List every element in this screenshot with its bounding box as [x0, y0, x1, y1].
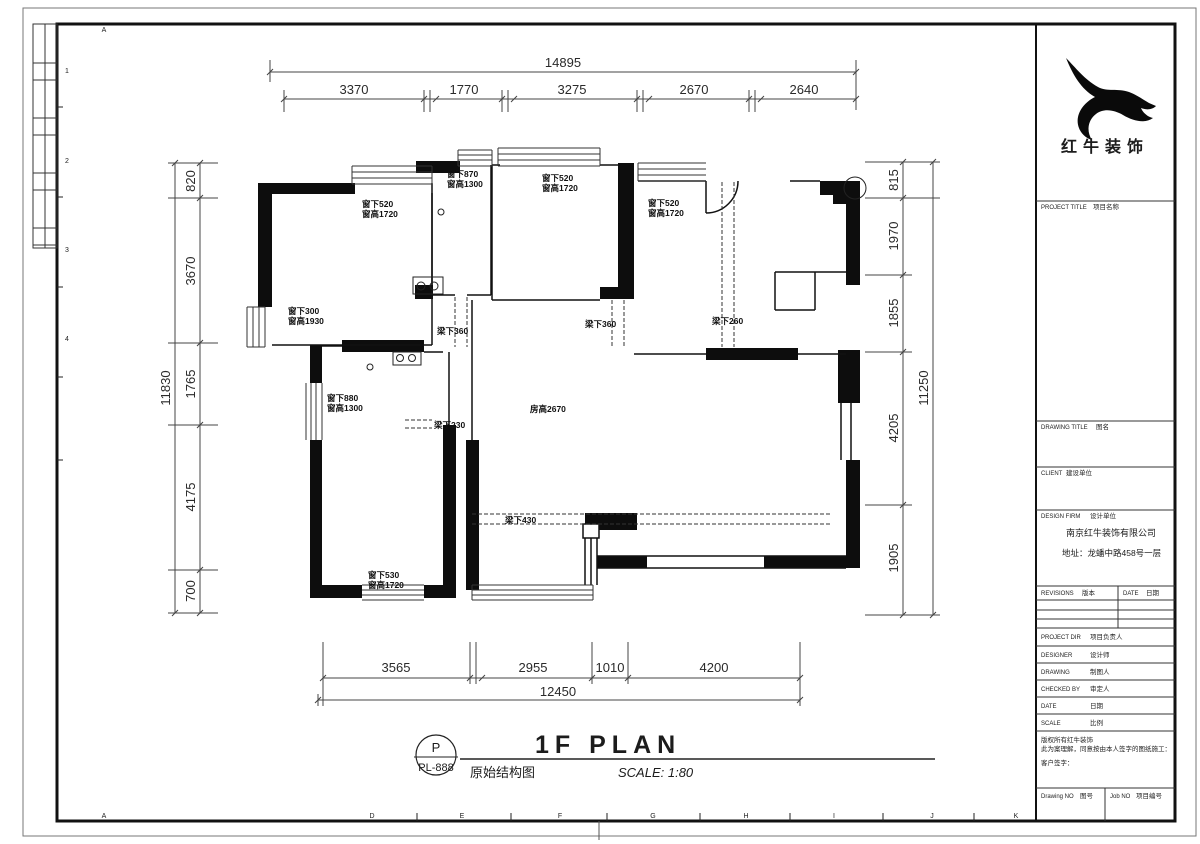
svg-text:日期: 日期: [1146, 589, 1160, 597]
window-label: 窗高1720: [368, 580, 404, 590]
svg-text:DESIGNER: DESIGNER: [1041, 653, 1073, 659]
window-label: 窗下880: [327, 393, 358, 403]
svg-text:3565: 3565: [382, 660, 411, 675]
plan-title: 1F PLAN: [535, 731, 681, 759]
svg-text:A: A: [102, 813, 107, 820]
svg-text:G: G: [650, 813, 655, 820]
window-label: 窗下520: [648, 198, 679, 208]
svg-text:DRAWING TITLE: DRAWING TITLE: [1041, 425, 1088, 431]
svg-text:1770: 1770: [450, 82, 479, 97]
svg-text:2640: 2640: [790, 82, 819, 97]
svg-text:设计师: 设计师: [1090, 650, 1110, 659]
svg-text:I: I: [833, 813, 835, 820]
plan-subtitle: 原始结构图: [470, 765, 535, 780]
grid-top-a: A: [102, 27, 107, 34]
window-label: 窗下530: [368, 570, 399, 580]
drawing-title-bar: P PL-888 1F PLAN 原始结构图 SCALE: 1:80: [414, 731, 935, 780]
svg-text:制图人: 制图人: [1090, 667, 1110, 676]
svg-text:图名: 图名: [1096, 422, 1109, 431]
window-label: 窗下520: [362, 199, 393, 209]
dim-total-top: 14895: [545, 55, 581, 70]
window-label: 窗高1300: [447, 179, 483, 189]
svg-text:2955: 2955: [519, 660, 548, 675]
dim-total-right: 11250: [916, 370, 931, 405]
svg-text:DESIGN FIRM: DESIGN FIRM: [1041, 514, 1080, 520]
svg-text:1: 1: [65, 68, 69, 75]
svg-text:1905: 1905: [886, 544, 901, 573]
svg-text:版本: 版本: [1082, 588, 1096, 597]
svg-text:建设单位: 建设单位: [1066, 468, 1093, 477]
svg-text:Drawing NO: Drawing NO: [1041, 794, 1074, 800]
svg-text:1855: 1855: [886, 299, 901, 328]
svg-text:1970: 1970: [886, 222, 901, 251]
revision-strip: [33, 24, 57, 248]
svg-text:3: 3: [65, 247, 69, 254]
bull-icon: [1066, 58, 1156, 140]
svg-text:1765: 1765: [183, 370, 198, 399]
construction-note: 此为案理解，同意按由本人签字的图纸施工：: [1041, 744, 1171, 753]
client-signature-label: 客户签字：: [1041, 758, 1074, 767]
window-label: 窗高1720: [362, 209, 398, 219]
window-label: 窗高1930: [288, 316, 324, 326]
beam-label: 梁下260: [711, 316, 743, 326]
svg-text:4175: 4175: [183, 483, 198, 512]
company-logo: 红牛装饰: [1061, 58, 1156, 156]
floor-drain-icon: [367, 364, 373, 370]
dimensions: [168, 60, 940, 706]
svg-text:3370: 3370: [340, 82, 369, 97]
svg-text:4205: 4205: [886, 414, 901, 443]
svg-text:K: K: [1014, 813, 1019, 820]
stamp-letter: P: [432, 740, 441, 755]
svg-text:1010: 1010: [596, 660, 625, 675]
plan-scale: SCALE: 1:80: [618, 765, 694, 780]
plan-annotations: 窗下520 窗高1720 窗下870 窗高1300 窗下520 窗高1720 窗…: [288, 169, 743, 590]
svg-text:2: 2: [65, 158, 69, 165]
window-label: 窗下520: [542, 173, 573, 183]
fixtures: [367, 177, 866, 370]
title-block: 红牛装饰 PROJECT TITLE 项目名称 DRAWING TITLE 图名…: [1036, 24, 1175, 821]
window-label: 窗下300: [288, 306, 319, 316]
drawing-sheet: A A D E F G H I J K 1 2 3 4: [0, 0, 1200, 844]
svg-text:815: 815: [886, 169, 901, 191]
window-label: 窗高1720: [542, 183, 578, 193]
svg-text:J: J: [930, 813, 934, 820]
firm-address: 地址：龙蟠中路458号一层: [1062, 548, 1161, 558]
beam-label: 梁下230: [433, 420, 465, 430]
svg-text:3275: 3275: [558, 82, 587, 97]
walls-thin: [272, 165, 851, 585]
svg-text:CHECKED BY: CHECKED BY: [1041, 687, 1080, 693]
copyright-note: 版权所有红牛装饰: [1041, 735, 1094, 744]
dim-total-left: 11830: [158, 370, 173, 405]
company-name: 红牛装饰: [1061, 137, 1149, 156]
svg-text:D: D: [369, 813, 374, 820]
svg-text:F: F: [558, 813, 562, 820]
svg-text:4: 4: [65, 336, 69, 343]
svg-text:3670: 3670: [183, 257, 198, 286]
svg-text:DATE: DATE: [1041, 704, 1057, 710]
svg-text:E: E: [460, 813, 465, 820]
room-height-label: 房高2670: [530, 404, 566, 414]
beam-label: 梁下360: [584, 319, 616, 329]
stamp-code: PL-888: [418, 762, 453, 774]
svg-text:700: 700: [183, 580, 198, 602]
svg-text:Job NO: Job NO: [1110, 794, 1131, 800]
svg-text:项目编号: 项目编号: [1136, 791, 1163, 800]
svg-text:REVISIONS: REVISIONS: [1041, 591, 1074, 597]
svg-text:比例: 比例: [1090, 718, 1103, 727]
svg-text:SCALE: SCALE: [1041, 721, 1061, 727]
svg-text:PROJECT TITLE: PROJECT TITLE: [1041, 205, 1087, 211]
svg-text:DRAWING: DRAWING: [1041, 670, 1070, 676]
firm-name: 南京红牛装饰有限公司: [1066, 527, 1156, 538]
svg-text:820: 820: [183, 170, 198, 192]
beam-label: 梁下360: [436, 326, 468, 336]
svg-text:图号: 图号: [1080, 792, 1094, 800]
dim-total-bottom: 12450: [540, 684, 576, 699]
svg-text:设计单位: 设计单位: [1090, 511, 1117, 520]
svg-text:H: H: [743, 813, 748, 820]
svg-text:日期: 日期: [1090, 702, 1104, 710]
svg-text:项目名称: 项目名称: [1093, 202, 1120, 211]
walls-solid: [258, 161, 860, 598]
svg-text:CLIENT: CLIENT: [1041, 471, 1063, 477]
sheet-frame: A A D E F G H I J K 1 2 3 4: [23, 8, 1196, 840]
beam-label: 梁下430: [504, 515, 536, 525]
floor-drain-icon: [438, 209, 444, 215]
window-label: 窗高1720: [648, 208, 684, 218]
window-label: 窗高1300: [327, 403, 363, 413]
svg-text:审定人: 审定人: [1090, 684, 1110, 693]
window-label: 窗下870: [447, 169, 478, 179]
svg-text:4200: 4200: [700, 660, 729, 675]
floor-plan: 窗下520 窗高1720 窗下870 窗高1300 窗下520 窗高1720 窗…: [247, 148, 866, 600]
svg-text:DATE: DATE: [1123, 591, 1139, 597]
svg-text:2670: 2670: [680, 82, 709, 97]
dimension-text: 14895 3370 1770 3275 2670 2640 11830 820…: [158, 55, 931, 699]
svg-text:项目负责人: 项目负责人: [1090, 632, 1123, 641]
svg-text:PROJECT DIR: PROJECT DIR: [1041, 635, 1082, 641]
